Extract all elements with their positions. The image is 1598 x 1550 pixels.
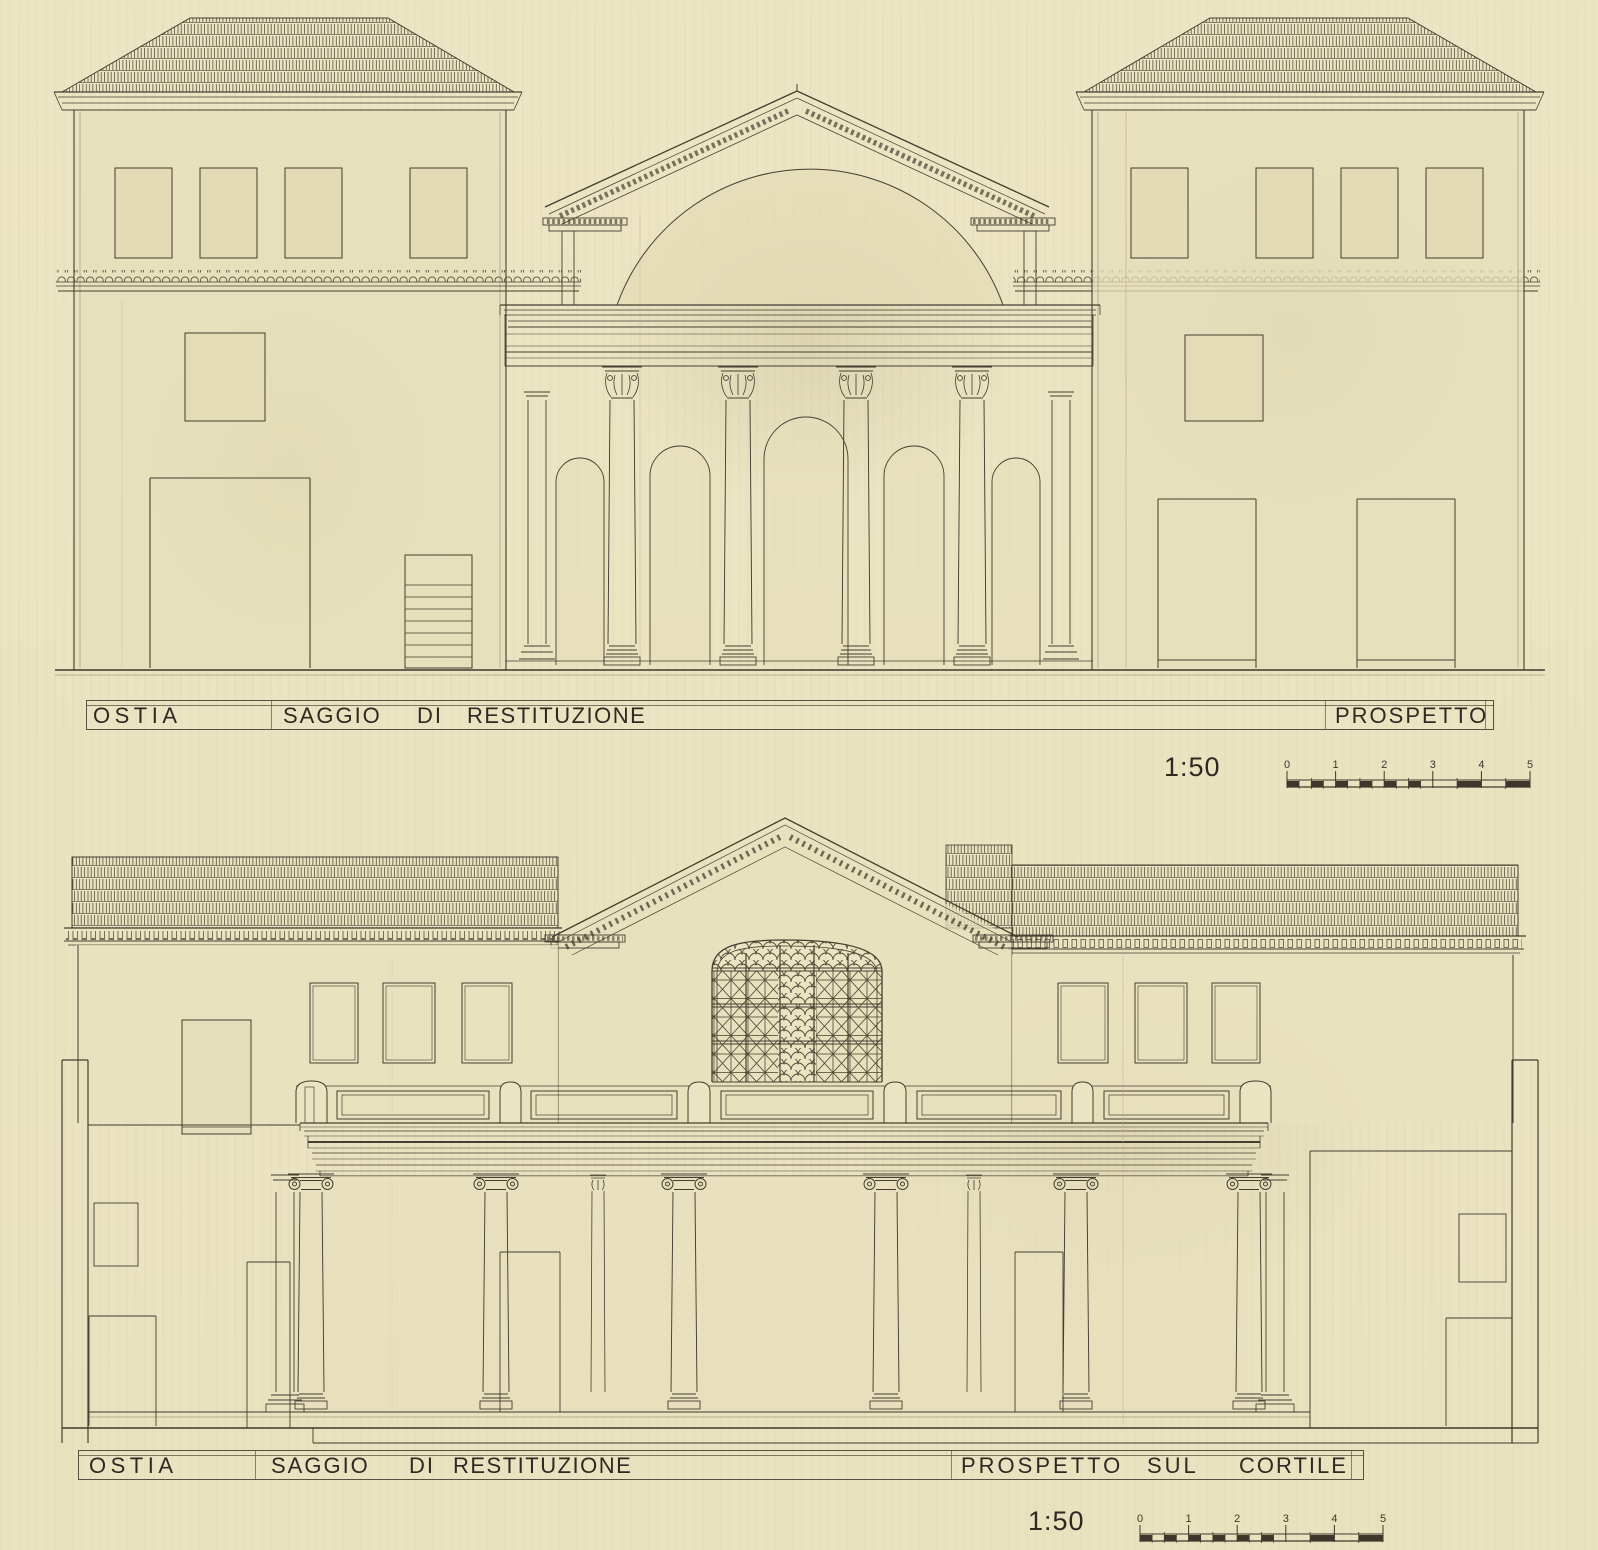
- roof-right: [1012, 865, 1518, 936]
- portico-entablature: [500, 305, 1100, 366]
- title-bar-prospetto: OSTIA SAGGIO DI RESTITUZIONE PROSPETTO: [86, 700, 1494, 730]
- scale-tick-label: 1: [1333, 759, 1339, 771]
- scale-tick-label: 1: [1186, 1513, 1192, 1525]
- title-view: PROSPETTO: [961, 1454, 1123, 1478]
- scale-tick-labels: 0 1 2 3 4 5: [1137, 1513, 1386, 1525]
- roof-left: [72, 857, 558, 928]
- pavilion-right: [1076, 18, 1544, 670]
- title-bar-prospetto-sul-cortile: OSTIA SAGGIO DI RESTITUZIONE PROSPETTO S…: [78, 1450, 1364, 1480]
- scale-tick-label: 2: [1381, 759, 1387, 771]
- colonnade-backdrop: [300, 1176, 1248, 1412]
- pavilion-right-ground-window: [1185, 335, 1263, 421]
- scale-tick-label: 4: [1478, 759, 1484, 771]
- portico-arches: [556, 417, 1040, 665]
- title-word: DI: [417, 704, 443, 728]
- scale-tick-label: 2: [1234, 1513, 1240, 1525]
- scale-bar: 0 1 2 3 4 5: [1134, 1510, 1404, 1548]
- title-word: RESTITUZIONE: [453, 1454, 632, 1478]
- scale-tick-label: 3: [1283, 1513, 1289, 1525]
- scale-bar-blocks: [1287, 781, 1530, 787]
- title-view: PROSPETTO: [1335, 704, 1488, 728]
- scale-tick-label: 5: [1527, 759, 1533, 771]
- title-site: OSTIA: [93, 704, 182, 728]
- scale-bar-blocks: [1140, 1535, 1383, 1541]
- ground-line: [55, 670, 1545, 675]
- scale-bar: 0 1 2 3 4 5: [1281, 756, 1551, 794]
- pavilion-left-ground-window: [185, 333, 265, 421]
- title-view: CORTILE: [1239, 1454, 1348, 1478]
- title-word: SAGGIO: [271, 1454, 370, 1478]
- title-view: SUL: [1147, 1454, 1199, 1478]
- title-site: OSTIA: [89, 1454, 178, 1478]
- drawing-sheet: OSTIA SAGGIO DI RESTITUZIONE PROSPETTO 1…: [0, 0, 1598, 1550]
- scale-tick-label: 3: [1430, 759, 1436, 771]
- title-word: SAGGIO: [283, 704, 382, 728]
- scale-tick-label: 0: [1284, 759, 1290, 771]
- scale-ratio: 1:50: [1164, 752, 1221, 783]
- pavilion-right-upper-windows: [1131, 168, 1483, 258]
- title-bar-divider: [271, 701, 272, 729]
- scale-tick-labels: 0 1 2 3 4 5: [1284, 759, 1533, 771]
- scale-tick-label: 0: [1137, 1513, 1143, 1525]
- pavilion-left: [54, 18, 522, 670]
- prospetto-sul-cortile-elevation-drawing: [0, 795, 1598, 1550]
- title-bar-divider: [1351, 1451, 1352, 1479]
- courtyard-ground: [62, 1412, 1538, 1443]
- central-portico: [500, 84, 1100, 665]
- lattice-window: [710, 938, 884, 1084]
- scale-ratio: 1:50: [1028, 1506, 1085, 1537]
- lunette-arch: [617, 169, 1003, 305]
- scale-tick-label: 4: [1331, 1513, 1337, 1525]
- title-word: RESTITUZIONE: [467, 704, 646, 728]
- pavilion-left-upper-windows: [115, 168, 467, 258]
- prospetto-elevation-drawing: [0, 0, 1598, 795]
- courtyard-door: [182, 1020, 251, 1134]
- scale-tick-label: 5: [1380, 1513, 1386, 1525]
- title-bar-divider: [1325, 701, 1326, 729]
- title-bar-divider: [951, 1451, 952, 1479]
- title-word: DI: [409, 1454, 435, 1478]
- title-bar-divider: [255, 1451, 256, 1479]
